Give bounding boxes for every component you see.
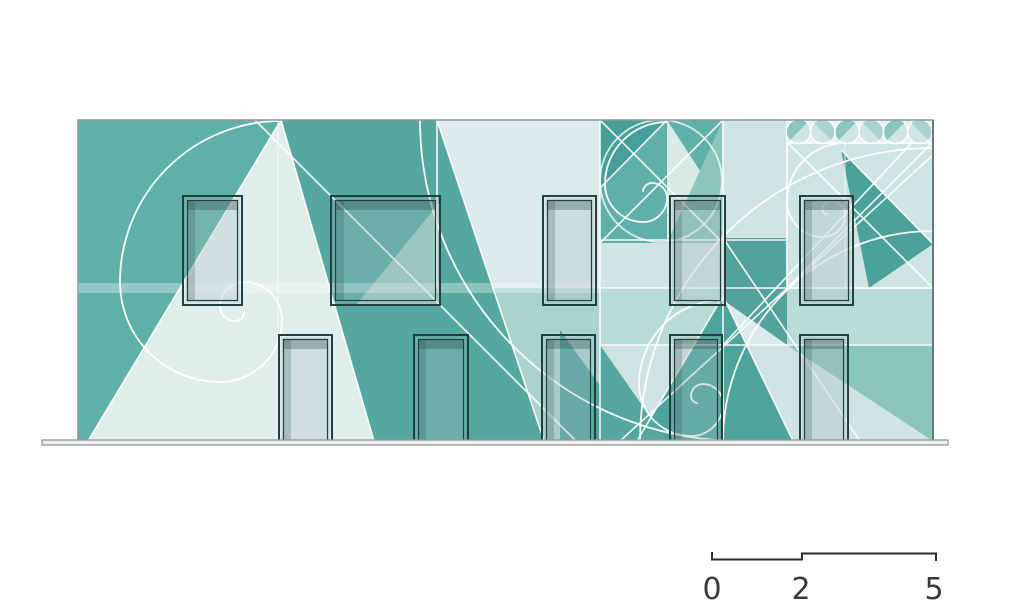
door-4 <box>670 335 722 441</box>
elevation-drawing: 0 2 5 <box>0 0 1024 611</box>
door-1 <box>279 335 332 441</box>
medallion-icon <box>835 119 859 143</box>
window-1 <box>183 196 242 305</box>
door-5 <box>800 335 848 441</box>
ground-line <box>42 440 948 445</box>
medallion-icon <box>884 119 908 143</box>
scale-label-0: 0 <box>702 572 721 607</box>
medallion-icon <box>859 119 883 143</box>
scale-bar: 0 2 5 <box>702 552 943 607</box>
door-3 <box>542 335 595 441</box>
window-5 <box>800 196 853 305</box>
medallion-icon <box>811 119 835 143</box>
window-4 <box>670 196 725 305</box>
door-2 <box>414 335 468 441</box>
medallion-icon <box>908 119 932 143</box>
scale-label-2: 2 <box>791 572 810 607</box>
scale-bar-line <box>712 552 936 561</box>
window-2 <box>331 196 440 305</box>
scale-label-5: 5 <box>924 572 943 607</box>
window-3 <box>543 196 596 305</box>
petal-medallion-band <box>786 119 933 143</box>
medallion-icon <box>786 119 810 143</box>
facade-artwork <box>78 119 933 441</box>
elevation-page: 0 2 5 <box>0 0 1024 611</box>
